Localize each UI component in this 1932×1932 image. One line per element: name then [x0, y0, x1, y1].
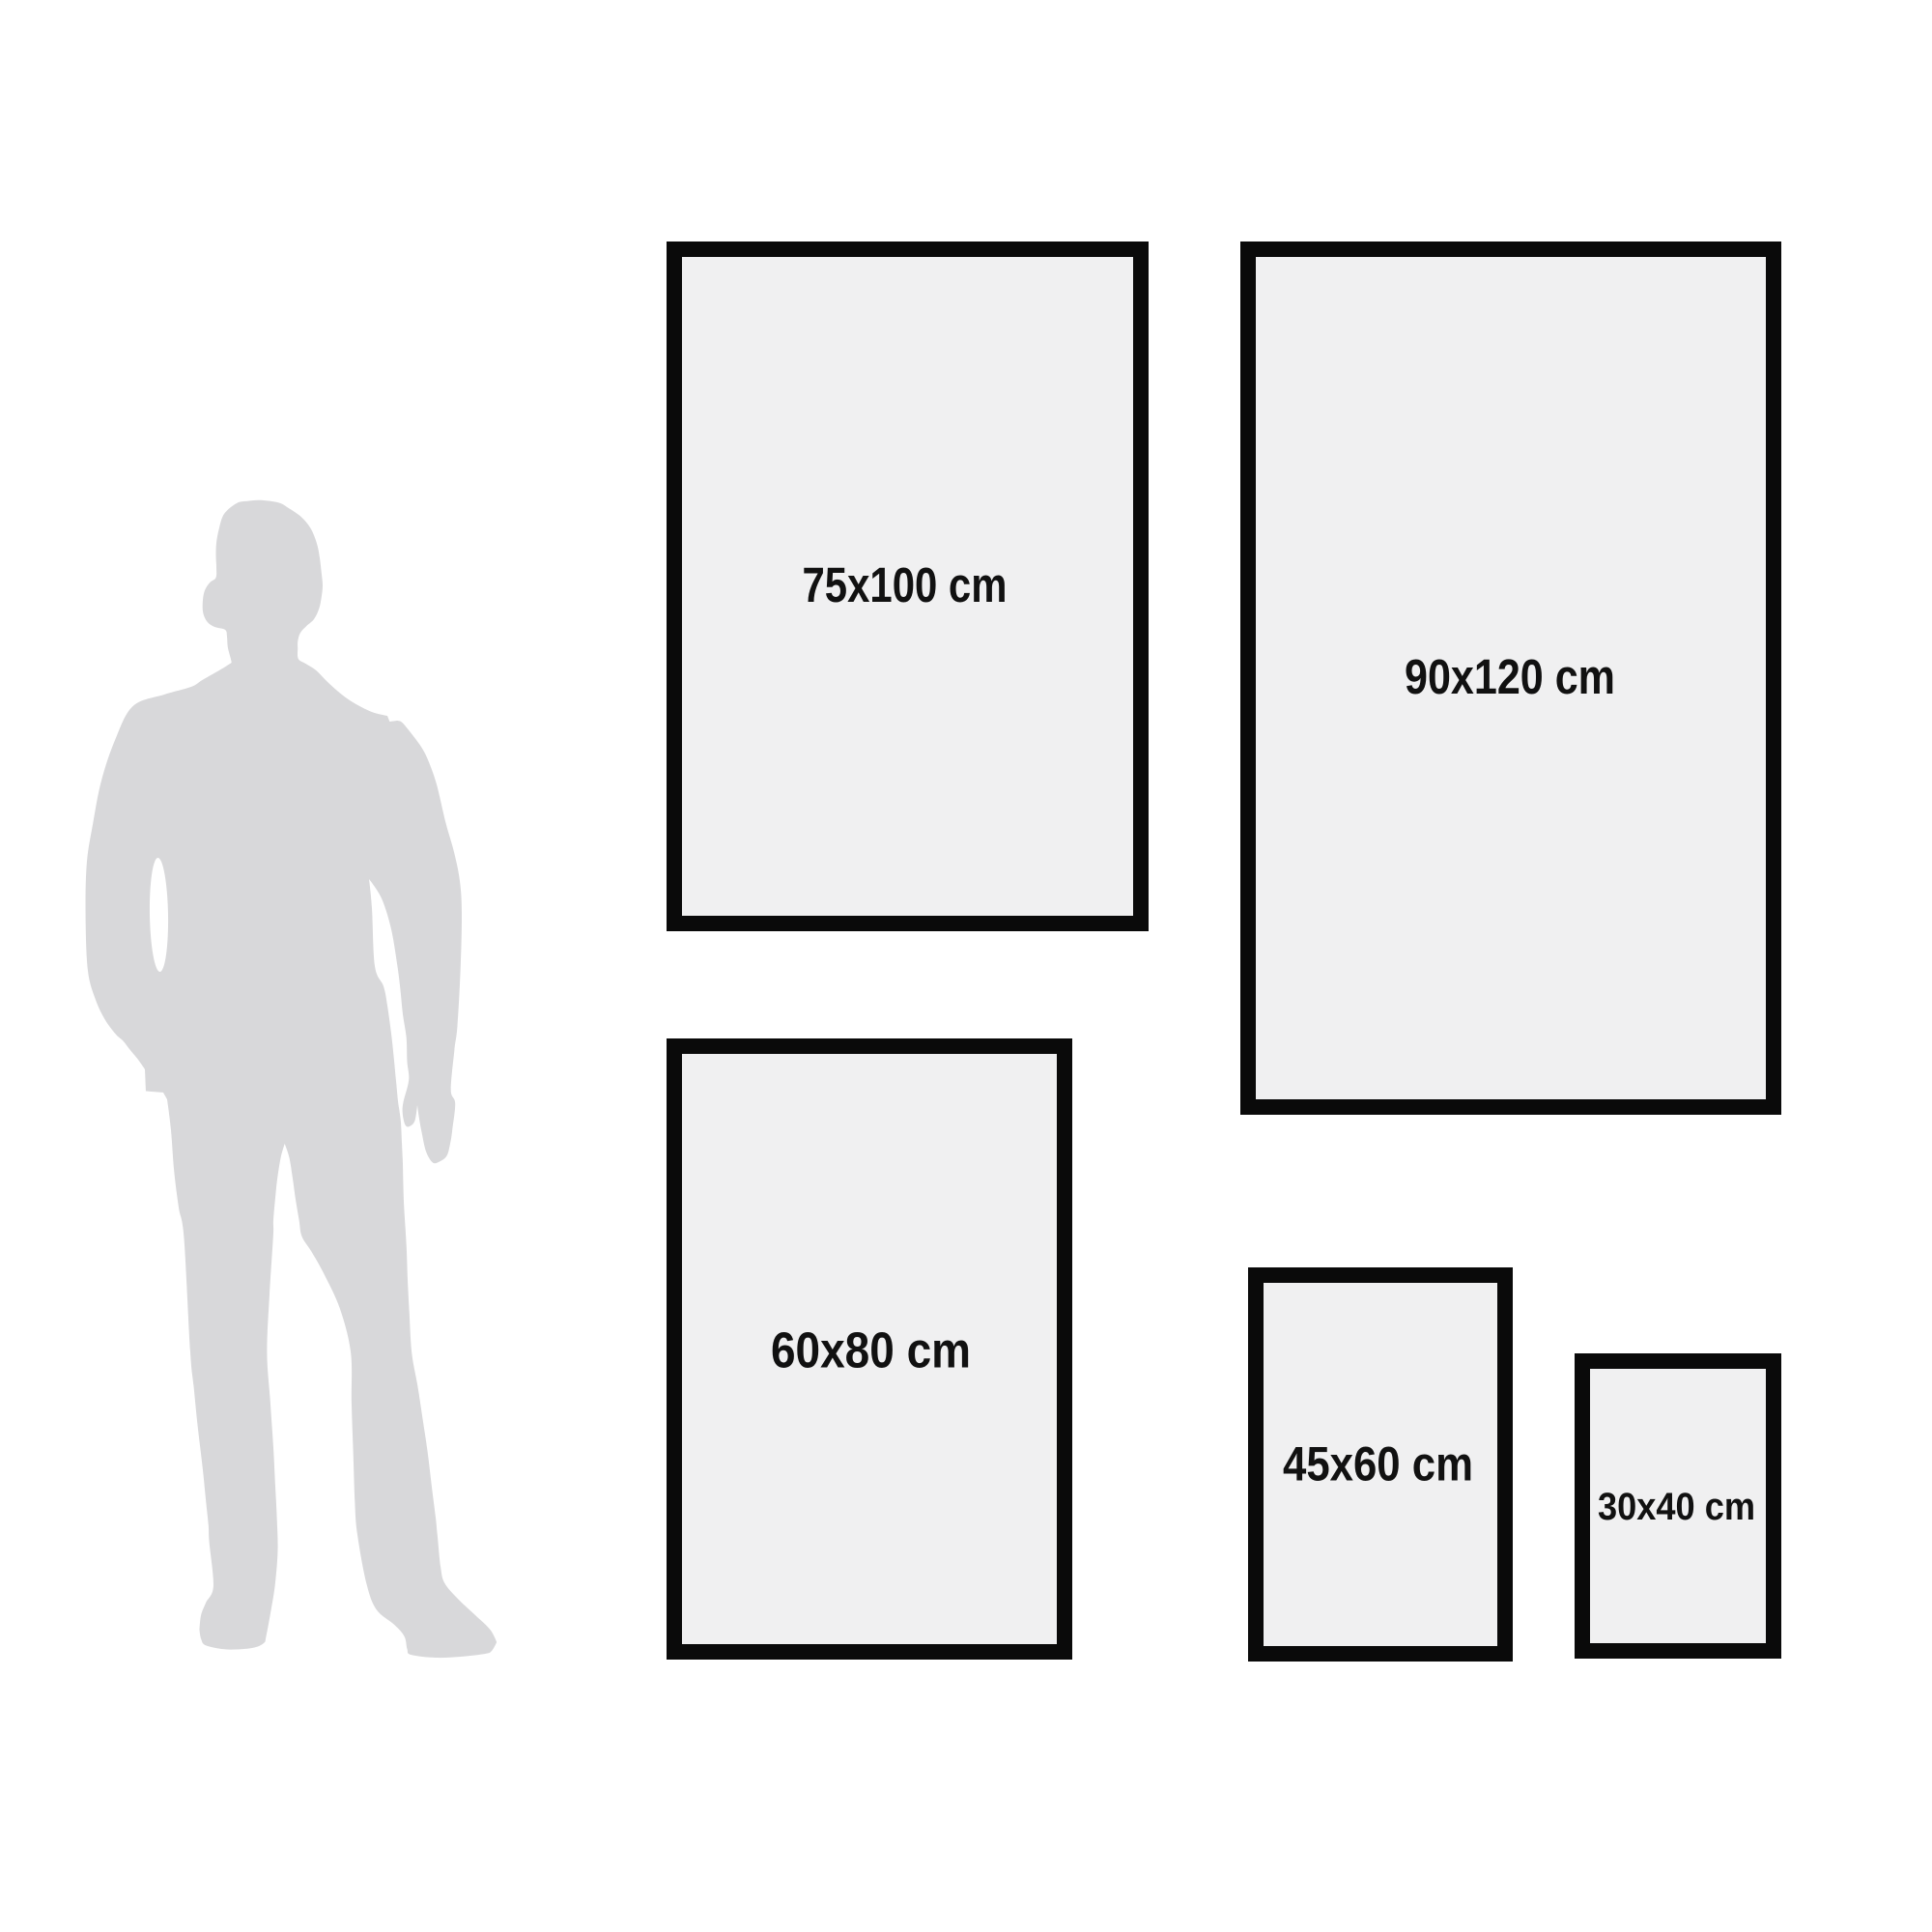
svg-text:75x100 cm: 75x100 cm [803, 557, 1008, 612]
svg-text:90x120 cm: 90x120 cm [1405, 649, 1615, 704]
svg-text:45x60 cm: 45x60 cm [1283, 1437, 1473, 1492]
svg-text:60x80 cm: 60x80 cm [771, 1322, 971, 1378]
svg-text:30x40 cm: 30x40 cm [1598, 1486, 1755, 1528]
